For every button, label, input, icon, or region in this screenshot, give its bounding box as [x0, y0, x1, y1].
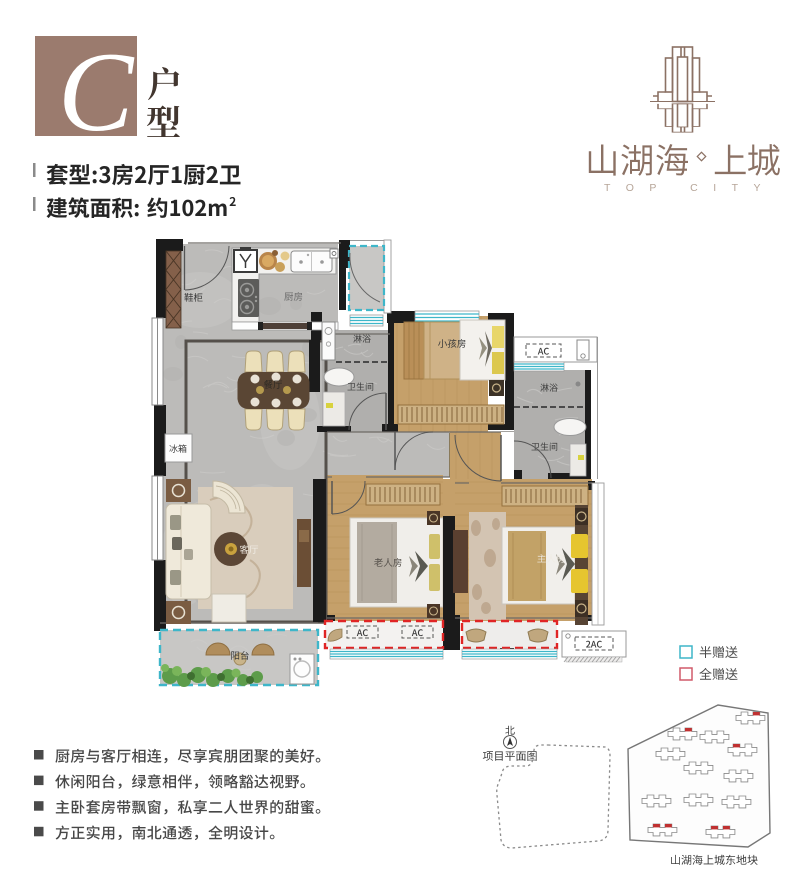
svg-text:TOP CITY: TOP CITY — [604, 182, 776, 194]
svg-text:C: C — [58, 30, 135, 155]
